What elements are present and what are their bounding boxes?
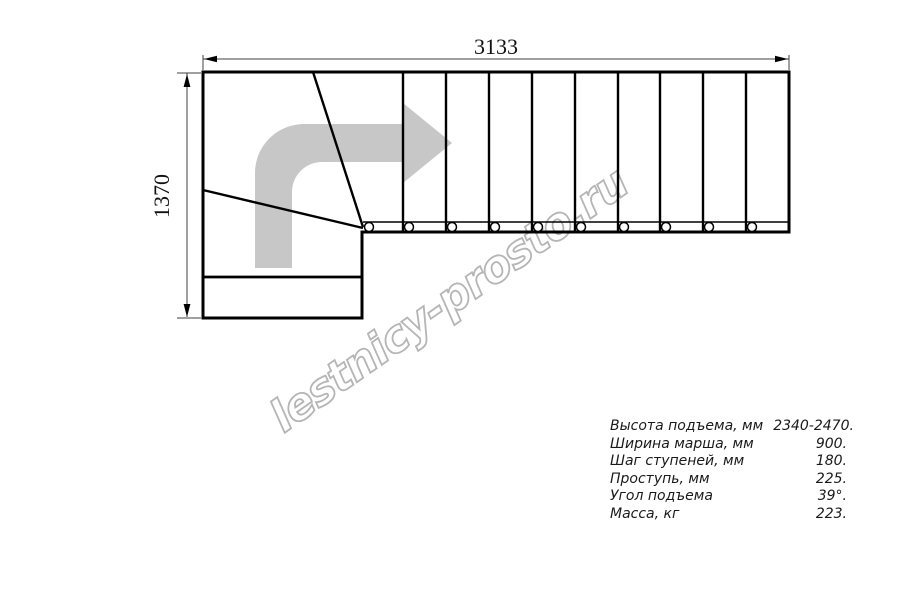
spec-row: Высота подъема, мм 2340-2470. bbox=[610, 418, 847, 436]
dim-arrow-left-icon bbox=[204, 56, 217, 62]
spec-value: 900. bbox=[816, 436, 847, 454]
spec-row: Ширина марша, мм 900. bbox=[610, 436, 847, 454]
spec-label: Проступь, мм bbox=[610, 471, 710, 489]
dim-arrow-up-icon bbox=[184, 74, 191, 87]
watermark: lestnicy-prosto.ru bbox=[261, 157, 638, 442]
dimension-top: 3133 bbox=[203, 34, 789, 70]
left-dimension-label: 1370 bbox=[149, 174, 174, 218]
spec-value: 223. bbox=[816, 506, 847, 524]
direction-arrow bbox=[255, 103, 452, 268]
tread-lines bbox=[403, 72, 746, 231]
dimension-left: 1370 bbox=[149, 73, 201, 318]
specs-table: Высота подъема, мм 2340-2470. Ширина мар… bbox=[610, 418, 847, 524]
spec-row: Проступь, мм 225. bbox=[610, 471, 847, 489]
spec-value: 2340-2470. bbox=[773, 418, 854, 436]
spec-value: 225. bbox=[816, 471, 847, 489]
spec-label: Ширина марша, мм bbox=[610, 436, 754, 454]
top-dimension-label: 3133 bbox=[474, 34, 518, 59]
spec-row: Угол подъема 39°. bbox=[610, 488, 847, 506]
spec-row: Шаг ступеней, мм 180. bbox=[610, 453, 847, 471]
staircase-plan-page: lestnicy-prosto.ru bbox=[0, 0, 900, 600]
spec-label: Шаг ступеней, мм bbox=[610, 453, 744, 471]
spec-row: Масса, кг 223. bbox=[610, 506, 847, 524]
spec-label: Угол подъема bbox=[610, 488, 713, 506]
spec-value: 39°. bbox=[818, 488, 847, 506]
spec-label: Масса, кг bbox=[610, 506, 679, 524]
spec-label: Высота подъема, мм bbox=[610, 418, 763, 436]
spec-value: 180. bbox=[816, 453, 847, 471]
dim-arrow-down-icon bbox=[184, 304, 191, 317]
dim-arrow-right-icon bbox=[775, 56, 788, 62]
